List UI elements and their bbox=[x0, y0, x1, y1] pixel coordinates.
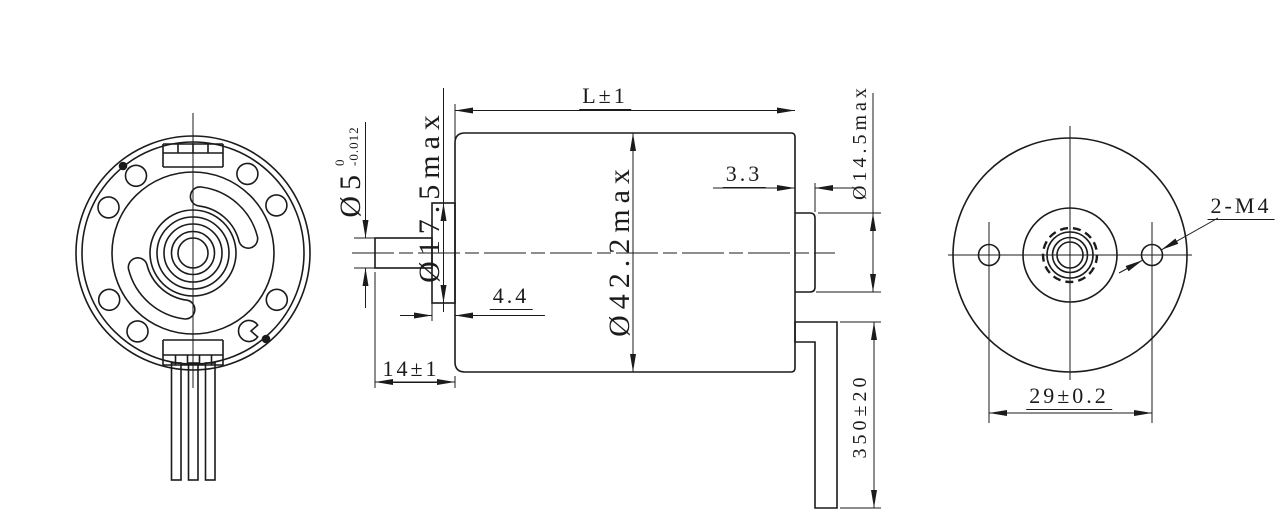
vent-hole bbox=[266, 289, 287, 310]
shaft-diameter-value: Ø5 bbox=[336, 169, 366, 218]
dim-thread-callout-label: 2-M4 bbox=[1208, 195, 1275, 220]
front-view bbox=[76, 113, 310, 480]
dim-body-diameter-label: Ø42.2max bbox=[605, 163, 635, 337]
vent-hole bbox=[237, 163, 258, 184]
lead-wire bbox=[172, 363, 182, 480]
technical-drawing bbox=[0, 0, 1280, 531]
dim-shaft-extension-label: 14±1 bbox=[379, 358, 442, 383]
weld-dot bbox=[263, 336, 270, 343]
lead-wire bbox=[206, 363, 216, 480]
vent-hole bbox=[99, 289, 120, 310]
shaft-tolerance-stack: 0 -0.012 bbox=[333, 126, 362, 166]
vent-hole bbox=[266, 195, 287, 216]
dim-overall-length-label: L±1 bbox=[579, 85, 631, 110]
dim-flange-diameter-label: Ø17.5max bbox=[415, 109, 445, 283]
dim-hole-spacing-label: 29±0.2 bbox=[1026, 385, 1112, 410]
dim-boss-length-label: 3.3 bbox=[723, 163, 766, 188]
dim-flange-thickness-label: 4.4 bbox=[490, 285, 533, 310]
dim-shaft-diameter-label: Ø5 0 -0.012 bbox=[336, 126, 366, 217]
shaft-tolerance-upper: 0 bbox=[333, 126, 347, 166]
vent-hole bbox=[98, 197, 119, 218]
drawing-canvas: L±1 4.4 14±1 3.3 29±0.2 2-M4 Ø17.5max Ø4… bbox=[0, 0, 1280, 531]
dim-boss-diameter-label: Ø14.5max bbox=[850, 84, 870, 200]
vent-hole bbox=[126, 165, 147, 186]
notched-hole bbox=[239, 321, 258, 342]
rear-view bbox=[948, 126, 1218, 423]
lead-cable bbox=[795, 322, 837, 508]
weld-dot bbox=[120, 163, 127, 170]
thread-leader-line bbox=[1119, 260, 1143, 273]
dim-lead-length-label: 350±20 bbox=[850, 374, 870, 459]
shaft-tolerance-lower: -0.012 bbox=[347, 126, 361, 166]
thread-leader-line bbox=[1161, 218, 1218, 250]
vent-hole bbox=[127, 321, 148, 342]
